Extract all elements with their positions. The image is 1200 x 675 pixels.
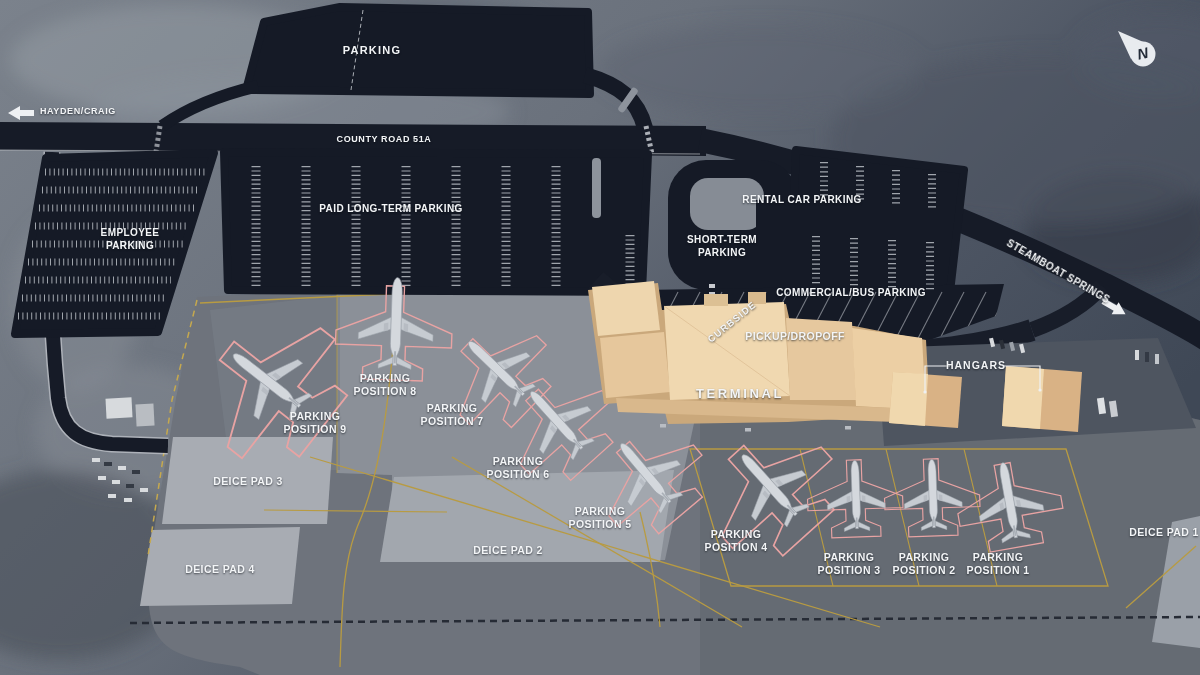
pickup-dropoff-label: PICKUP/DROPOFF	[745, 330, 845, 343]
commercial-bus-label: COMMERCIAL/BUS PARKING	[776, 287, 926, 300]
paid-long-term-label: PAID LONG-TERM PARKING	[319, 203, 462, 216]
deice-pad-1-label: DEICE PAD 1	[1129, 526, 1199, 539]
rental-connector	[756, 200, 804, 292]
deice-pad-4-label: DEICE PAD 4	[185, 563, 255, 576]
rental-car-lot	[790, 150, 964, 292]
parking-position-8-label: PARKING POSITION 8	[347, 372, 423, 398]
short-term-label: SHORT-TERM PARKING	[686, 234, 758, 259]
parking-position-4-label: PARKING POSITION 4	[698, 528, 774, 554]
airport-site-plan: PARKING HAYDEN/CRAIG COUNTY ROAD 51A EMP…	[0, 0, 1200, 675]
deice-pad-3-label: DEICE PAD 3	[213, 475, 283, 488]
parking-position-2-label: PARKING POSITION 2	[886, 551, 962, 577]
parking-position-3-label: PARKING POSITION 3	[811, 551, 887, 577]
paid-long-term-lot	[224, 152, 648, 292]
terminal-label: TERMINAL	[696, 386, 784, 402]
hayden-craig-label: HAYDEN/CRAIG	[40, 106, 116, 117]
county-road-label: COUNTY ROAD 51A	[337, 134, 432, 145]
parking-position-9-label: PARKING POSITION 9	[277, 410, 353, 436]
deice-pad-2-label: DEICE PAD 2	[473, 544, 543, 557]
employee-parking-label: EMPLOYEE PARKING	[98, 227, 162, 252]
entry-median	[592, 158, 601, 218]
top-parking-label: PARKING	[343, 44, 401, 58]
hangars-label: HANGARS	[946, 359, 1006, 372]
parking-position-6-label: PARKING POSITION 6	[480, 455, 556, 481]
parking-position-5-label: PARKING POSITION 5	[562, 505, 638, 531]
parking-position-7-label: PARKING POSITION 7	[414, 402, 490, 428]
top-parking-lot	[246, 7, 590, 94]
rental-car-label: RENTAL CAR PARKING	[742, 194, 861, 207]
parking-position-1-label: PARKING POSITION 1	[960, 551, 1036, 577]
